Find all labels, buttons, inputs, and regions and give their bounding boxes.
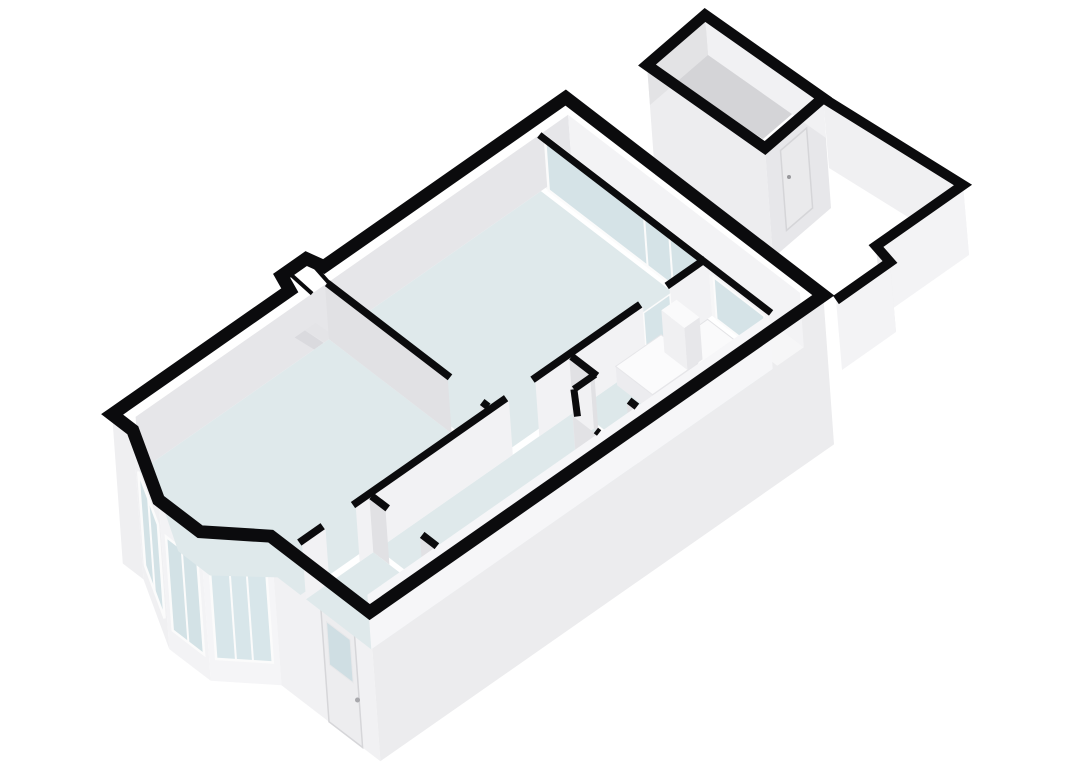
wc-wall-cap-angled xyxy=(574,389,578,416)
bay-right-window-glass xyxy=(210,565,273,663)
front-door-handle xyxy=(355,698,360,703)
floorplan-scene xyxy=(0,0,1080,764)
floorplan-3d-render xyxy=(0,0,1080,764)
wc-wall-cap-b xyxy=(596,431,599,434)
living-bedroom-divider-cap-b xyxy=(482,402,488,407)
shed-door-handle xyxy=(787,175,791,179)
corridor-bathroom-wall-cap-b xyxy=(629,401,637,407)
